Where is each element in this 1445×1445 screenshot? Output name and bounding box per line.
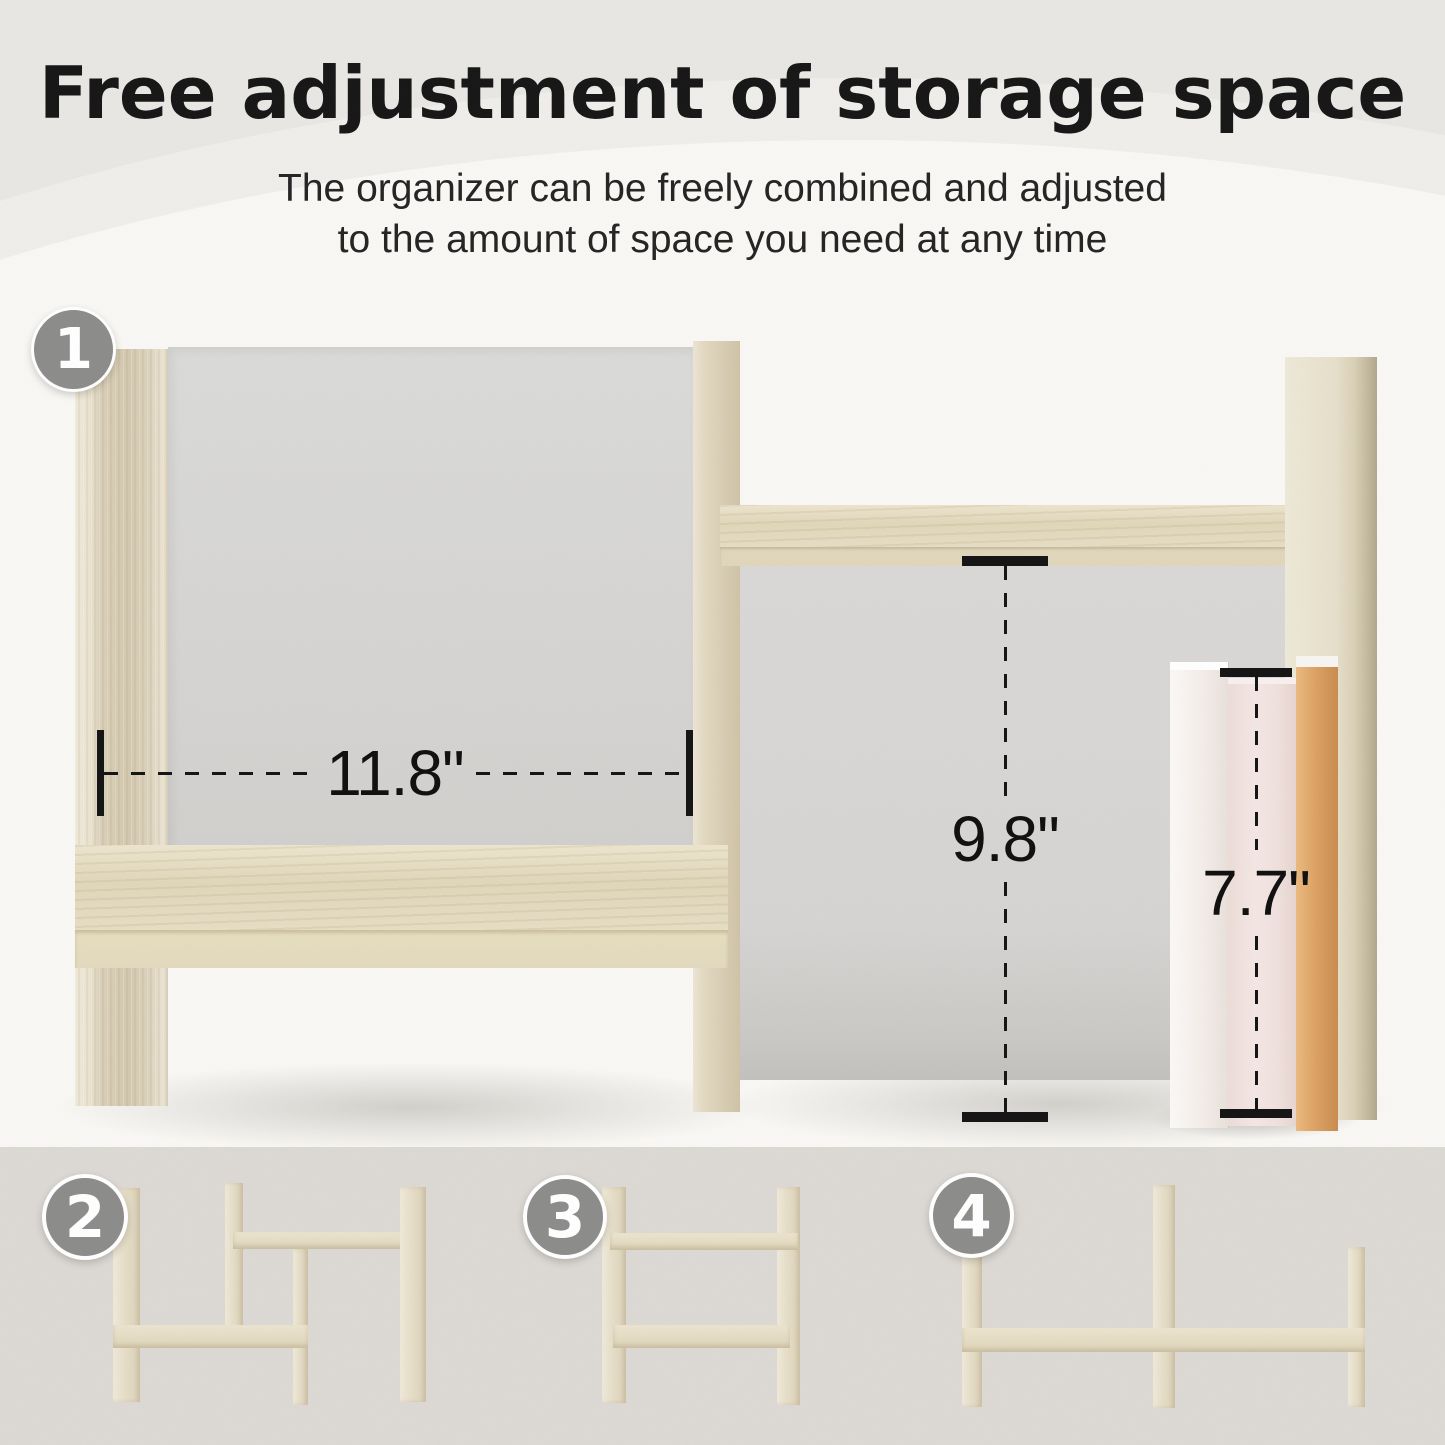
dimension-book-height: 7.7" (1186, 668, 1326, 1118)
config4-long-shelf (962, 1328, 1365, 1352)
dimension-tick-right (686, 730, 693, 816)
organizer-right-shelf-top (720, 505, 1377, 547)
dimension-dashes (104, 772, 314, 775)
config4-number-badge: 4 (929, 1173, 1014, 1258)
dimension-book-height-label: 7.7" (1202, 856, 1310, 930)
dimension-dashes (1255, 677, 1258, 850)
organizer-left-shelf-front (75, 930, 728, 968)
config2-middle-divider (225, 1183, 243, 1348)
config2-top-shelf (233, 1232, 425, 1249)
config1-number-badge: 1 (31, 307, 116, 392)
config2-number-badge: 2 (42, 1174, 128, 1260)
dimension-tick-bottom (1220, 1109, 1292, 1118)
config4-middle-post (1153, 1185, 1175, 1408)
config3-bottom-shelf (613, 1325, 790, 1348)
page-subtitle: The organizer can be freely combined and… (0, 163, 1445, 266)
config3-right-post (777, 1187, 800, 1405)
config4-right-post (1348, 1247, 1365, 1407)
dimension-shelf-height-label: 9.8" (951, 802, 1059, 876)
organizer-left-shelf-top (75, 845, 728, 930)
dimension-tick-bottom (962, 1112, 1048, 1122)
dimension-tick-top (1220, 668, 1292, 677)
config2-bottom-shelf (113, 1325, 308, 1348)
alternate-configs-strip (0, 1147, 1445, 1445)
config2-right-post (400, 1187, 426, 1402)
page-title: Free adjustment of storage space (0, 52, 1445, 135)
dimension-tick-top (962, 556, 1048, 566)
organizer-middle-post (693, 341, 740, 1112)
subtitle-line-1: The organizer can be freely combined and… (0, 163, 1445, 214)
dimension-dashes (1004, 566, 1007, 796)
dimension-dashes (476, 772, 686, 775)
config3-top-shelf (610, 1233, 798, 1250)
dimension-dashes (1004, 882, 1007, 1112)
subtitle-line-2: to the amount of space you need at any t… (0, 214, 1445, 265)
header: Free adjustment of storage space The org… (0, 52, 1445, 266)
dimension-shelf-width: 11.8" (97, 727, 693, 819)
dimension-shelf-width-label: 11.8" (326, 736, 464, 810)
config3-number-badge: 3 (523, 1175, 607, 1259)
dimension-tick-left (97, 730, 104, 816)
product-infographic: Free adjustment of storage space The org… (0, 0, 1445, 1445)
dimension-dashes (1255, 936, 1258, 1109)
dimension-shelf-height: 9.8" (949, 556, 1061, 1122)
